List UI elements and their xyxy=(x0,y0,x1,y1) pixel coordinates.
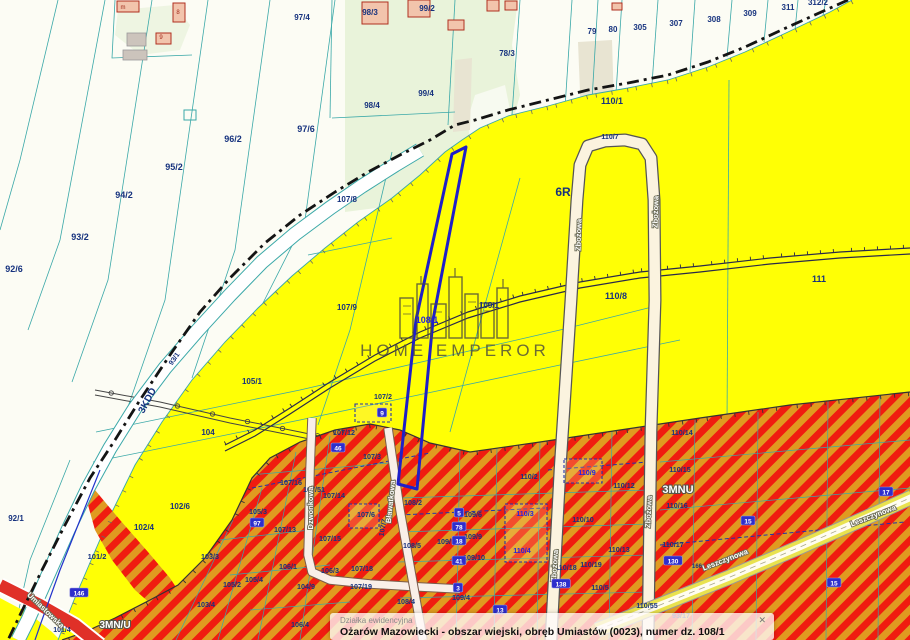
parcel-label: 101/4 xyxy=(53,627,71,634)
address-marker-number: 138 xyxy=(556,581,567,588)
parcel-label: 110/15 xyxy=(669,465,691,474)
parcel-label: 107/15 xyxy=(319,534,341,543)
address-marker-number: 15 xyxy=(830,580,838,587)
parcel-label: 92/6 xyxy=(5,264,23,274)
parcel-label: 102/6 xyxy=(170,502,191,511)
parcel-label: 97/4 xyxy=(294,13,310,22)
parcel-label: 99/4 xyxy=(418,89,434,98)
parcel-label: 106/3 xyxy=(321,566,339,575)
parcel-label: 311 xyxy=(782,3,795,12)
parcel-label: 98/4 xyxy=(364,101,380,110)
parcel-label: 105/1 xyxy=(242,377,263,386)
parcel-label: 110/2 xyxy=(520,472,538,481)
zone-label: 3MNU xyxy=(662,484,693,496)
parcel-label: 107/9 xyxy=(337,303,358,312)
address-marker-number: 9 xyxy=(380,410,384,417)
parcel-label: 107/18 xyxy=(351,564,373,573)
parcel-label: 105/3 xyxy=(249,507,267,516)
street-label: Zbożowa xyxy=(643,495,654,528)
street-label: Zbożowa xyxy=(650,195,660,228)
parcel-label: 305 xyxy=(633,23,647,32)
parcel-label: 103/4 xyxy=(197,600,215,609)
parcel-label: 94/2 xyxy=(115,190,133,200)
parcel-label: 110/13 xyxy=(608,545,630,554)
parcel-label: 107/8 xyxy=(337,195,358,204)
address-marker-number: 78 xyxy=(455,524,463,531)
popup-parcel-description: Ożarów Mazowiecki - obszar wiejski, obrę… xyxy=(340,626,766,638)
address-marker-number: 3 xyxy=(456,585,460,592)
address-marker-number: 41 xyxy=(455,558,463,565)
parcel-label: 109/4 xyxy=(452,593,470,602)
parcel-label: 98/3 xyxy=(362,8,378,17)
parcel-label: 107/12 xyxy=(333,428,355,437)
parcel-label: 110/9 xyxy=(578,468,596,477)
parcel-label: 110/8 xyxy=(605,291,627,301)
parcel-label: 109/6 xyxy=(464,510,482,519)
parcel-label: 106/1 xyxy=(279,562,297,571)
parcel-label: 107/2 xyxy=(374,392,392,401)
address-marker-number: 130 xyxy=(668,558,679,565)
address-marker-number: 97 xyxy=(253,520,261,527)
parcel-label: 307 xyxy=(669,19,683,28)
parcel-label: 108/4 xyxy=(397,597,415,606)
street-label: Dzwonkowa xyxy=(306,486,315,530)
parcel-label: 99/2 xyxy=(419,4,435,13)
parcel-label: 80 xyxy=(609,25,618,34)
parcel-label: 110/16 xyxy=(666,501,688,510)
popup-title: Działka ewidencyjna xyxy=(340,616,412,625)
street-label: Zbożowa xyxy=(573,218,583,251)
parcel-label: 105/2 xyxy=(223,580,241,589)
parcel-label: 110/19 xyxy=(580,560,602,569)
parcel-label: 309 xyxy=(743,9,757,18)
parcel-label: 107/16 xyxy=(280,478,302,487)
parcel-label: 97/6 xyxy=(297,124,315,134)
parcel-label: 108/2 xyxy=(404,498,422,507)
parcel-label: 92/1 xyxy=(8,514,24,523)
parcel-label: 110/3 xyxy=(516,509,534,518)
parcel-label: 93/2 xyxy=(71,232,89,242)
address-marker-number: 15 xyxy=(744,518,752,525)
parcel-label: 109/9 xyxy=(464,532,482,541)
building-label: m xyxy=(121,5,126,11)
parcel-label: 110/14 xyxy=(671,428,693,437)
parcel-label: 110/12 xyxy=(613,481,635,490)
zone-label: 3MN/U xyxy=(99,620,130,631)
parcel-label: 107/6 xyxy=(357,510,375,519)
parcel-label: 110/10 xyxy=(572,515,594,524)
map-viewport: m89HOME EMPEROR92/693/294/295/296/297/69… xyxy=(0,0,910,640)
parcel-label: 108/5 xyxy=(403,541,421,550)
parcel-label: 110/4 xyxy=(513,546,531,555)
close-icon[interactable]: ✕ xyxy=(758,616,766,625)
parcel-label: 102/4 xyxy=(134,523,155,532)
parcel-label: 79 xyxy=(588,27,597,36)
parcel-label: 110/55 xyxy=(636,601,658,610)
address-marker-number: 5 xyxy=(457,510,461,517)
parcel-info-popup: Działka ewidencyjna ✕ Ożarów Mazowiecki … xyxy=(330,613,774,640)
parcel-label: 109/1 xyxy=(479,301,500,310)
address-marker-number: 46 xyxy=(334,445,342,452)
parcel-label: 111 xyxy=(812,274,826,284)
parcel-label: 107/3 xyxy=(363,452,381,461)
parcel-label: 105/4 xyxy=(245,575,263,584)
parcel-label: 110/7 xyxy=(601,134,618,141)
parcel-label: 78/3 xyxy=(499,49,515,58)
parcel-label: 95/2 xyxy=(165,162,183,172)
watermark-text: HOME EMPEROR xyxy=(360,341,550,360)
parcel-label: 6R xyxy=(555,185,571,199)
map-canvas[interactable]: m89HOME EMPEROR92/693/294/295/296/297/69… xyxy=(0,0,910,640)
parcel-label: 107/13 xyxy=(274,525,296,534)
parcel-label: 104/9 xyxy=(297,582,315,591)
parcel-label: 308 xyxy=(707,15,721,24)
parcel-label: 107/19 xyxy=(350,582,372,591)
parcel-label: 104 xyxy=(201,428,215,437)
parcel-label: 107/14 xyxy=(323,491,345,500)
address-marker-number: 17 xyxy=(882,489,890,496)
parcel-label: 101/2 xyxy=(88,552,107,561)
parcel-label: 108/1 xyxy=(416,315,439,325)
parcel-label: 110/5 xyxy=(591,583,609,592)
parcel-label: 109/10 xyxy=(463,553,485,562)
parcel-label: 103/3 xyxy=(201,552,219,561)
parcel-label: 110/1 xyxy=(601,96,623,106)
parcel-label: 110/17 xyxy=(662,540,684,549)
parcel-label: 312/2 xyxy=(808,0,829,7)
parcel-label: 106/4 xyxy=(291,620,309,629)
parcel-label: 96/2 xyxy=(224,134,242,144)
address-marker-number: 18 xyxy=(455,538,463,545)
address-marker-number: 146 xyxy=(74,590,85,597)
